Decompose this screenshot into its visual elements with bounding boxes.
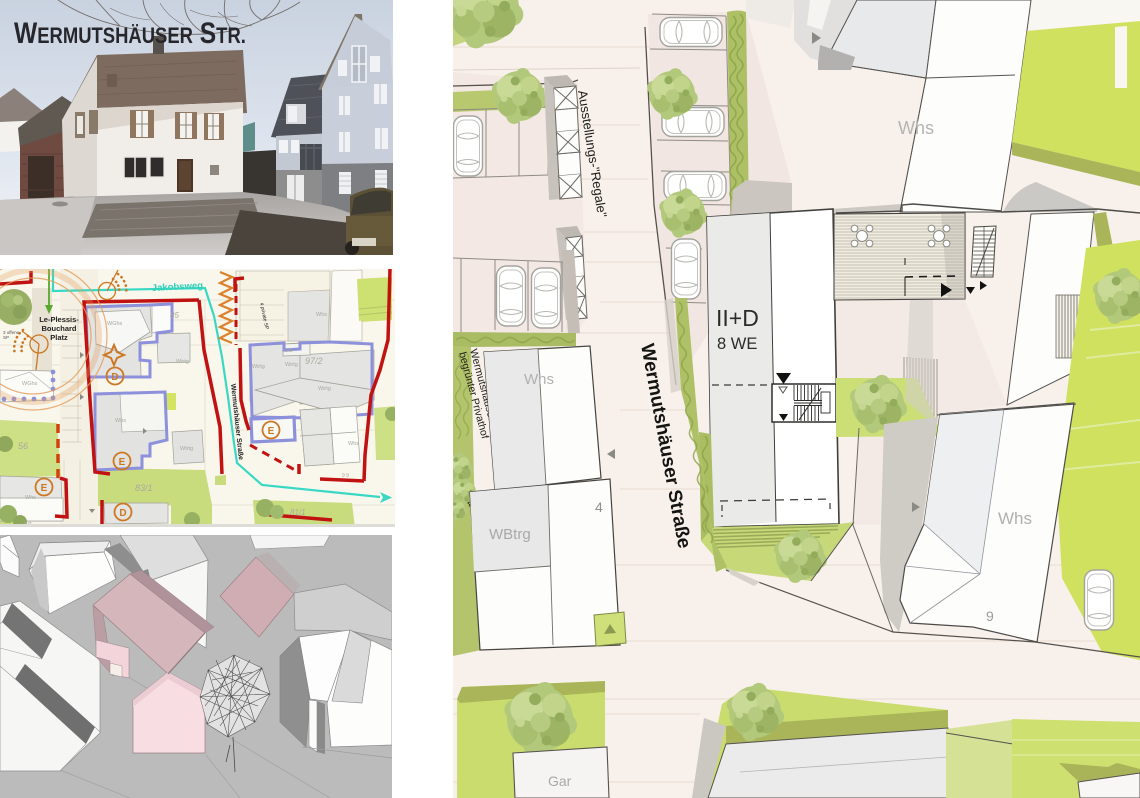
svg-text:56: 56: [18, 441, 28, 451]
svg-text:Whs: Whs: [316, 312, 327, 318]
svg-text:SP: SP: [3, 335, 9, 340]
svg-text:II+D: II+D: [716, 305, 759, 331]
svg-text:WBtrg: WBtrg: [489, 526, 531, 543]
svg-text:D: D: [111, 372, 118, 383]
svg-text:Whs: Whs: [25, 495, 36, 501]
svg-text:Whs: Whs: [115, 418, 126, 424]
svg-text:Wirtg: Wirtg: [285, 362, 298, 368]
svg-text:E: E: [268, 426, 275, 437]
svg-text:WGhs: WGhs: [22, 381, 38, 387]
svg-text:D: D: [119, 508, 126, 519]
svg-text:Wirtg: Wirtg: [318, 386, 331, 392]
svg-text:Gar: Gar: [548, 773, 572, 789]
svg-text:8 WE: 8 WE: [717, 335, 757, 353]
svg-text:9: 9: [986, 608, 994, 624]
svg-text:E: E: [119, 457, 126, 468]
svg-text:Whs: Whs: [348, 441, 359, 447]
svg-text:97/2: 97/2: [305, 356, 323, 366]
svg-text:Whs: Whs: [998, 509, 1032, 528]
svg-text:Whs: Whs: [524, 371, 554, 388]
svg-text:WGhs: WGhs: [107, 321, 123, 327]
svg-text:Whs: Whs: [898, 118, 934, 138]
svg-text:4: 4: [595, 499, 603, 515]
svg-text:Gar: Gar: [284, 348, 293, 354]
svg-text:Wirtg: Wirtg: [252, 364, 265, 370]
svg-text:Platz: Platz: [50, 333, 68, 342]
svg-text:9 9: 9 9: [342, 473, 349, 479]
svg-text:E: E: [41, 483, 48, 494]
svg-text:Wirtg: Wirtg: [176, 359, 189, 365]
svg-text:81/1: 81/1: [290, 508, 306, 517]
svg-text:Bouchard: Bouchard: [41, 324, 76, 333]
svg-text:83/1: 83/1: [135, 483, 153, 493]
svg-text:Wtrtg: Wtrtg: [180, 446, 193, 452]
svg-text:85: 85: [170, 311, 179, 320]
svg-text:Le-Plessis-: Le-Plessis-: [39, 315, 79, 324]
